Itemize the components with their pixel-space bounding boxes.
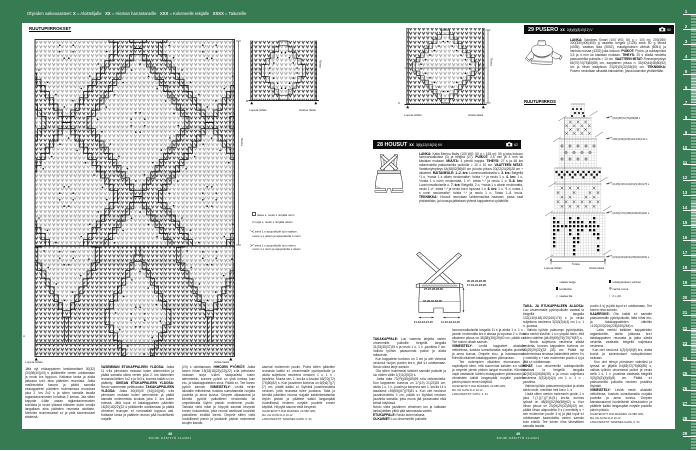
svg-text:=(192)(204)216(228)240(264) s: =(192)(204)216(228)240(264) s	[612, 255, 650, 259]
svg-text:=(128)(136)144(152)(160)176 s: =(128)(136)144(152)(160)176 s	[612, 182, 650, 186]
svg-text:=(160)(170)(180)190(200)220 s: =(160)(170)(180)190(200)220 s	[612, 211, 650, 215]
svg-text:=(64)(68)72(76)(80)88 s: =(64)(68)72(76)(80)88 s	[612, 116, 641, 120]
svg-text:=(96)(102)(108)114(120)132 s: =(96)(102)(108)114(120)132 s	[612, 137, 649, 141]
